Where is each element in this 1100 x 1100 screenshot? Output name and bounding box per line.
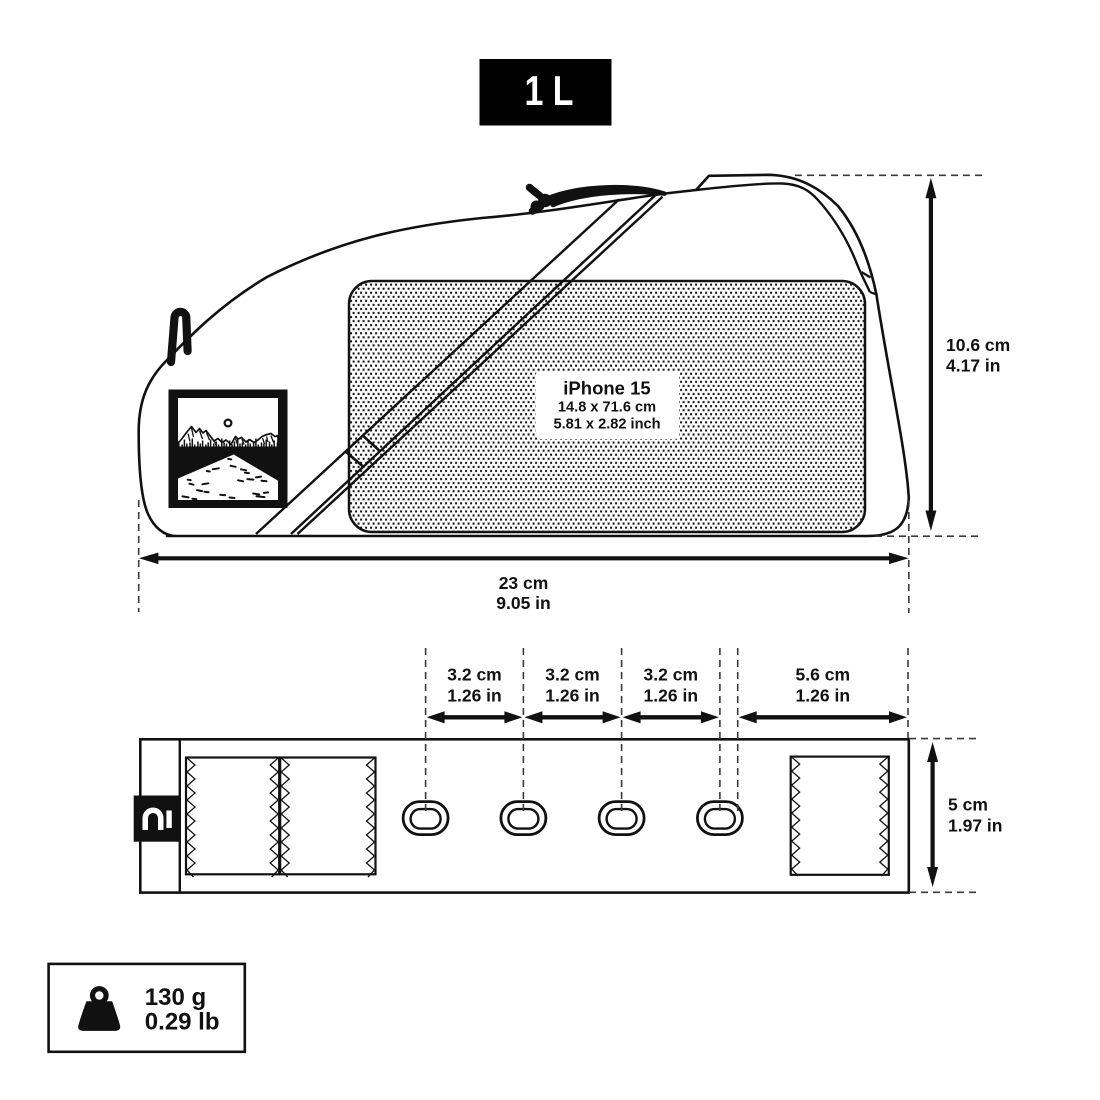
- svg-text:9.05 in: 9.05 in: [496, 593, 550, 613]
- svg-text:14.8 x 71.6 cm: 14.8 x 71.6 cm: [558, 400, 656, 416]
- svg-text:0.29 lb: 0.29 lb: [145, 1009, 220, 1036]
- svg-text:3.2 cm: 3.2 cm: [545, 665, 599, 685]
- svg-text:5.81 x 2.82 inch: 5.81 x 2.82 inch: [553, 417, 660, 433]
- svg-text:4.17 in: 4.17 in: [946, 356, 1000, 376]
- svg-text:130 g: 130 g: [145, 984, 206, 1011]
- svg-text:iPhone 15: iPhone 15: [563, 378, 650, 399]
- svg-text:1.26 in: 1.26 in: [796, 686, 850, 706]
- svg-text:1 L: 1 L: [525, 67, 574, 114]
- svg-text:23 cm: 23 cm: [499, 573, 549, 593]
- svg-text:3.2 cm: 3.2 cm: [644, 665, 698, 685]
- svg-text:1.26 in: 1.26 in: [644, 686, 698, 706]
- svg-text:1.97 in: 1.97 in: [948, 816, 1002, 836]
- svg-text:10.6 cm: 10.6 cm: [946, 335, 1010, 355]
- svg-text:3.2 cm: 3.2 cm: [447, 665, 501, 685]
- svg-text:1.26 in: 1.26 in: [447, 686, 501, 706]
- svg-text:1.26 in: 1.26 in: [545, 686, 599, 706]
- svg-text:5 cm: 5 cm: [948, 795, 988, 815]
- svg-text:5.6 cm: 5.6 cm: [796, 665, 850, 685]
